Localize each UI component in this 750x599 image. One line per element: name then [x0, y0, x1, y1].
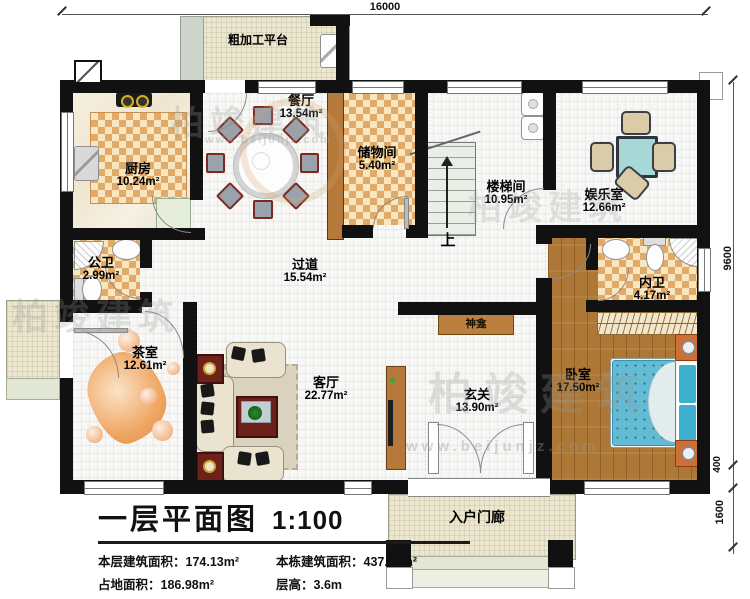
lamp-icon: [203, 362, 216, 375]
rough-platform-glass-strip: [180, 16, 204, 84]
label-living-room: 客厅22.77m²: [305, 376, 348, 403]
lamp-icon: [681, 340, 696, 355]
decor-dot-icon: [390, 378, 395, 383]
pebble-icon: [152, 420, 173, 441]
lamp-icon: [203, 460, 216, 473]
sofa-cushion: [237, 451, 252, 466]
sofa-cushion: [255, 451, 270, 466]
wardrobe: [597, 312, 702, 335]
side-platform-step: [6, 378, 60, 400]
window: [584, 481, 670, 495]
wall-storage-stair: [415, 93, 428, 238]
plant-icon: [248, 406, 262, 420]
stat-building-area: 本栋建筑面积：437.00m²: [276, 551, 470, 570]
dining-chair: [253, 106, 273, 125]
porch-pillar: [548, 540, 573, 567]
toilet-icon: [646, 244, 664, 271]
door-leaf: [74, 328, 128, 333]
wall-segment: [536, 232, 552, 244]
wall-entry-bedroom: [536, 278, 552, 480]
label-stairs-up: 上: [440, 233, 455, 250]
stat-floor-height: 层高：3.6m: [276, 574, 470, 593]
dining-chair: [206, 153, 225, 173]
stat-footprint-area: 占地面积：186.98m²: [98, 574, 276, 593]
kitchen-sink-icon: [74, 146, 99, 181]
sofa-cushion: [200, 401, 214, 415]
entry-door-leaf: [523, 422, 534, 474]
label-storage: 储物间5.40m²: [357, 146, 396, 173]
pillow: [677, 363, 698, 405]
pillow: [677, 403, 698, 445]
label-dining: 餐厅13.54m²: [280, 94, 323, 121]
wall-segment: [310, 14, 350, 26]
sofa-cushion: [231, 346, 246, 361]
pebble-icon: [167, 362, 180, 375]
plan-title-row: 一层平面图1:100: [98, 496, 470, 538]
wall-segment: [140, 240, 152, 268]
arrow-head-icon: [441, 150, 453, 166]
label-corridor: 过道15.54m²: [284, 258, 327, 285]
title-underline: [98, 541, 470, 544]
dimension-right-porch: 1600: [714, 500, 726, 524]
game-chair: [590, 142, 614, 172]
wall-kitchen-dining: [190, 93, 203, 200]
title-block: 一层平面图1:100 本层建筑面积：174.13m² 本栋建筑面积：437.00…: [98, 496, 470, 593]
storage-cabinet: [327, 92, 344, 240]
wall-tea-top: [60, 300, 142, 313]
game-chair: [652, 142, 676, 172]
dimension-right-height: 9600: [722, 246, 734, 270]
plan-scale: 1:100: [272, 505, 344, 535]
door-leaf: [404, 198, 409, 229]
flue-box-icon: [74, 60, 102, 84]
window: [352, 81, 404, 94]
wall-stair-entertainment: [543, 93, 556, 190]
dining-chair: [253, 200, 273, 219]
label-rough-platform: 粗加工平台: [228, 34, 288, 47]
lamp-icon: [681, 446, 696, 461]
wall-corridor-entry: [398, 302, 538, 315]
side-platform-floor: [6, 300, 60, 380]
label-kitchen: 厨房10.24m²: [117, 162, 160, 189]
door-opening: [205, 80, 245, 93]
washer-icon: [521, 92, 545, 116]
washer-icon: [521, 116, 545, 140]
dining-table-center: [252, 152, 270, 170]
stat-floor-area: 本层建筑面积：174.13m²: [98, 551, 276, 570]
floor-plan-canvas: 16000 9600 400 1600: [0, 0, 750, 599]
sofa-cushion: [200, 419, 214, 433]
dimension-line-right: [733, 82, 734, 554]
wall-tea-living: [183, 302, 197, 480]
label-tea-room: 茶室12.61m²: [124, 346, 167, 373]
door-opening: [60, 322, 73, 378]
window: [447, 81, 522, 94]
sofa-bottom: [222, 446, 284, 482]
game-chair: [621, 111, 651, 135]
label-ensuite: 内卫4.17m²: [634, 276, 670, 303]
label-entertainment: 娱乐室12.66m²: [583, 188, 626, 215]
dimension-right-step: 400: [712, 456, 723, 473]
kitchen-rug: [90, 112, 187, 204]
window: [582, 81, 668, 94]
dining-chair: [300, 153, 319, 173]
plan-stats: 本层建筑面积：174.13m² 本栋建筑面积：437.00m² 占地面积：186…: [98, 551, 470, 593]
sofa-cushion: [200, 383, 215, 398]
porch-pillar-base: [548, 567, 575, 589]
window: [698, 248, 711, 292]
wall-segment: [342, 225, 373, 238]
wall-segment: [406, 225, 428, 238]
burner-icon: [121, 95, 134, 108]
wall-entertainment-bottom: [536, 225, 710, 238]
window: [344, 481, 372, 495]
sink-icon: [602, 239, 630, 260]
shrine-shelf: 神龛: [438, 313, 514, 335]
dimension-line-top: [62, 14, 708, 15]
burner-icon: [136, 95, 149, 108]
label-bedroom: 卧室17.50m²: [557, 368, 600, 395]
tv-icon: [388, 400, 393, 446]
sofa-cushion: [251, 348, 266, 363]
stair-direction-arrow: [446, 158, 448, 228]
label-stairwell: 楼梯间10.95m²: [485, 180, 528, 207]
label-public-bath: 公卫2.99m²: [83, 256, 119, 283]
window: [61, 112, 74, 192]
label-entry: 玄关13.90m²: [456, 388, 499, 415]
pebble-icon: [140, 388, 157, 405]
entry-threshold: [408, 478, 550, 497]
window: [84, 481, 164, 495]
dimension-top-width: 16000: [320, 1, 450, 13]
plan-title: 一层平面图: [98, 504, 258, 536]
pebble-icon: [86, 426, 103, 443]
